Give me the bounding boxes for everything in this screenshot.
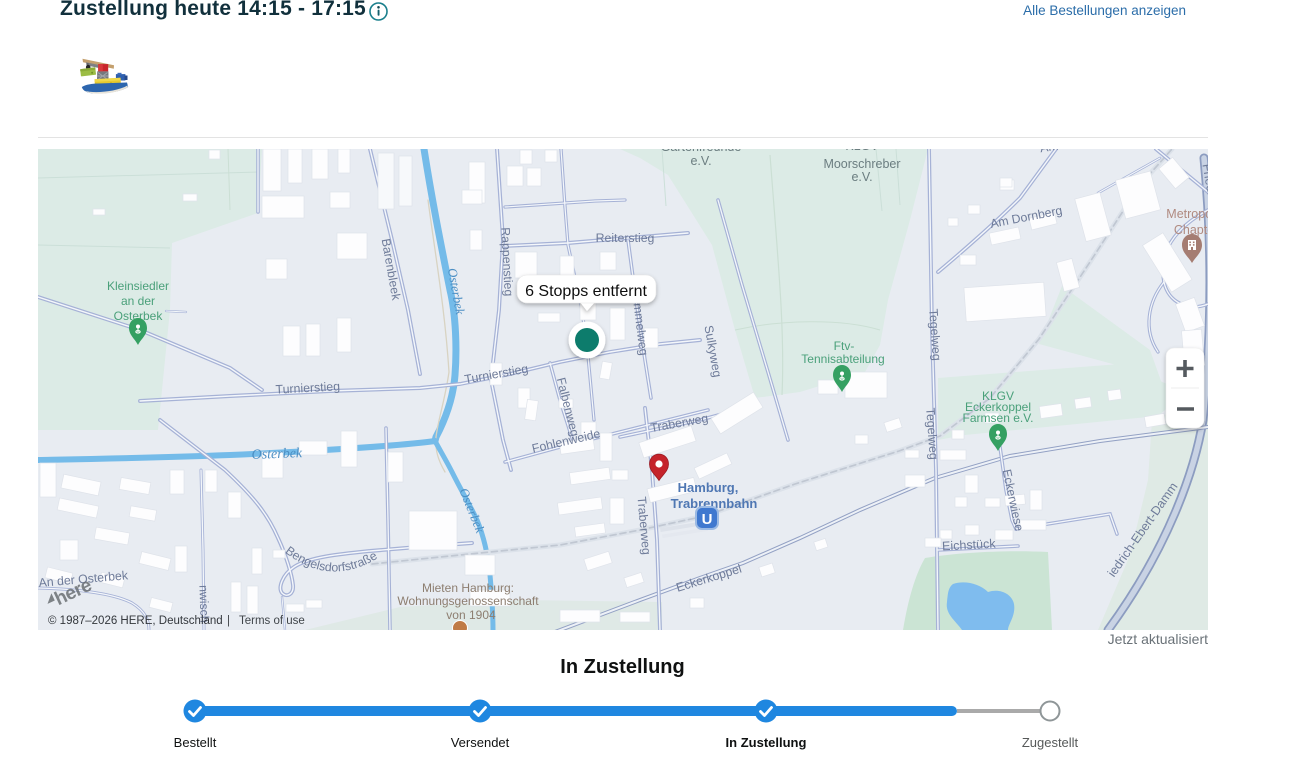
svg-text:Moorschreber: Moorschreber bbox=[823, 157, 900, 171]
svg-text:Metropoli: Metropoli bbox=[1166, 207, 1208, 221]
svg-text:|: | bbox=[227, 615, 230, 627]
svg-text:Mieten Hamburg:: Mieten Hamburg: bbox=[422, 581, 514, 595]
svg-text:Eichstück: Eichstück bbox=[942, 537, 997, 554]
svg-text:U: U bbox=[702, 511, 713, 528]
svg-text:Ftv-: Ftv- bbox=[834, 339, 855, 353]
svg-text:KLGV: KLGV bbox=[845, 149, 879, 153]
svg-text:e.V.: e.V. bbox=[851, 170, 872, 184]
svg-text:© 1987–2026 HERE, Deutschland: © 1987–2026 HERE, Deutschland bbox=[48, 615, 223, 627]
svg-text:Wohnungsgenossenschaft: Wohnungsgenossenschaft bbox=[397, 594, 539, 608]
svg-text:Tennisabteilung: Tennisabteilung bbox=[801, 352, 884, 366]
svg-text:Kleinsiedler: Kleinsiedler bbox=[107, 279, 169, 293]
svg-text:Farmsen e.V.: Farmsen e.V. bbox=[963, 411, 1034, 425]
svg-text:an der: an der bbox=[121, 294, 155, 308]
svg-text:Osterbek: Osterbek bbox=[251, 446, 303, 463]
svg-text:Reiterstieg: Reiterstieg bbox=[596, 231, 655, 245]
svg-text:6 Stopps entfernt: 6 Stopps entfernt bbox=[525, 283, 647, 300]
svg-text:Terms of use: Terms of use bbox=[239, 615, 305, 627]
svg-text:Hamburg,: Hamburg, bbox=[678, 480, 739, 495]
svg-text:von 1904: von 1904 bbox=[446, 608, 496, 622]
svg-text:e.V.: e.V. bbox=[690, 154, 711, 168]
